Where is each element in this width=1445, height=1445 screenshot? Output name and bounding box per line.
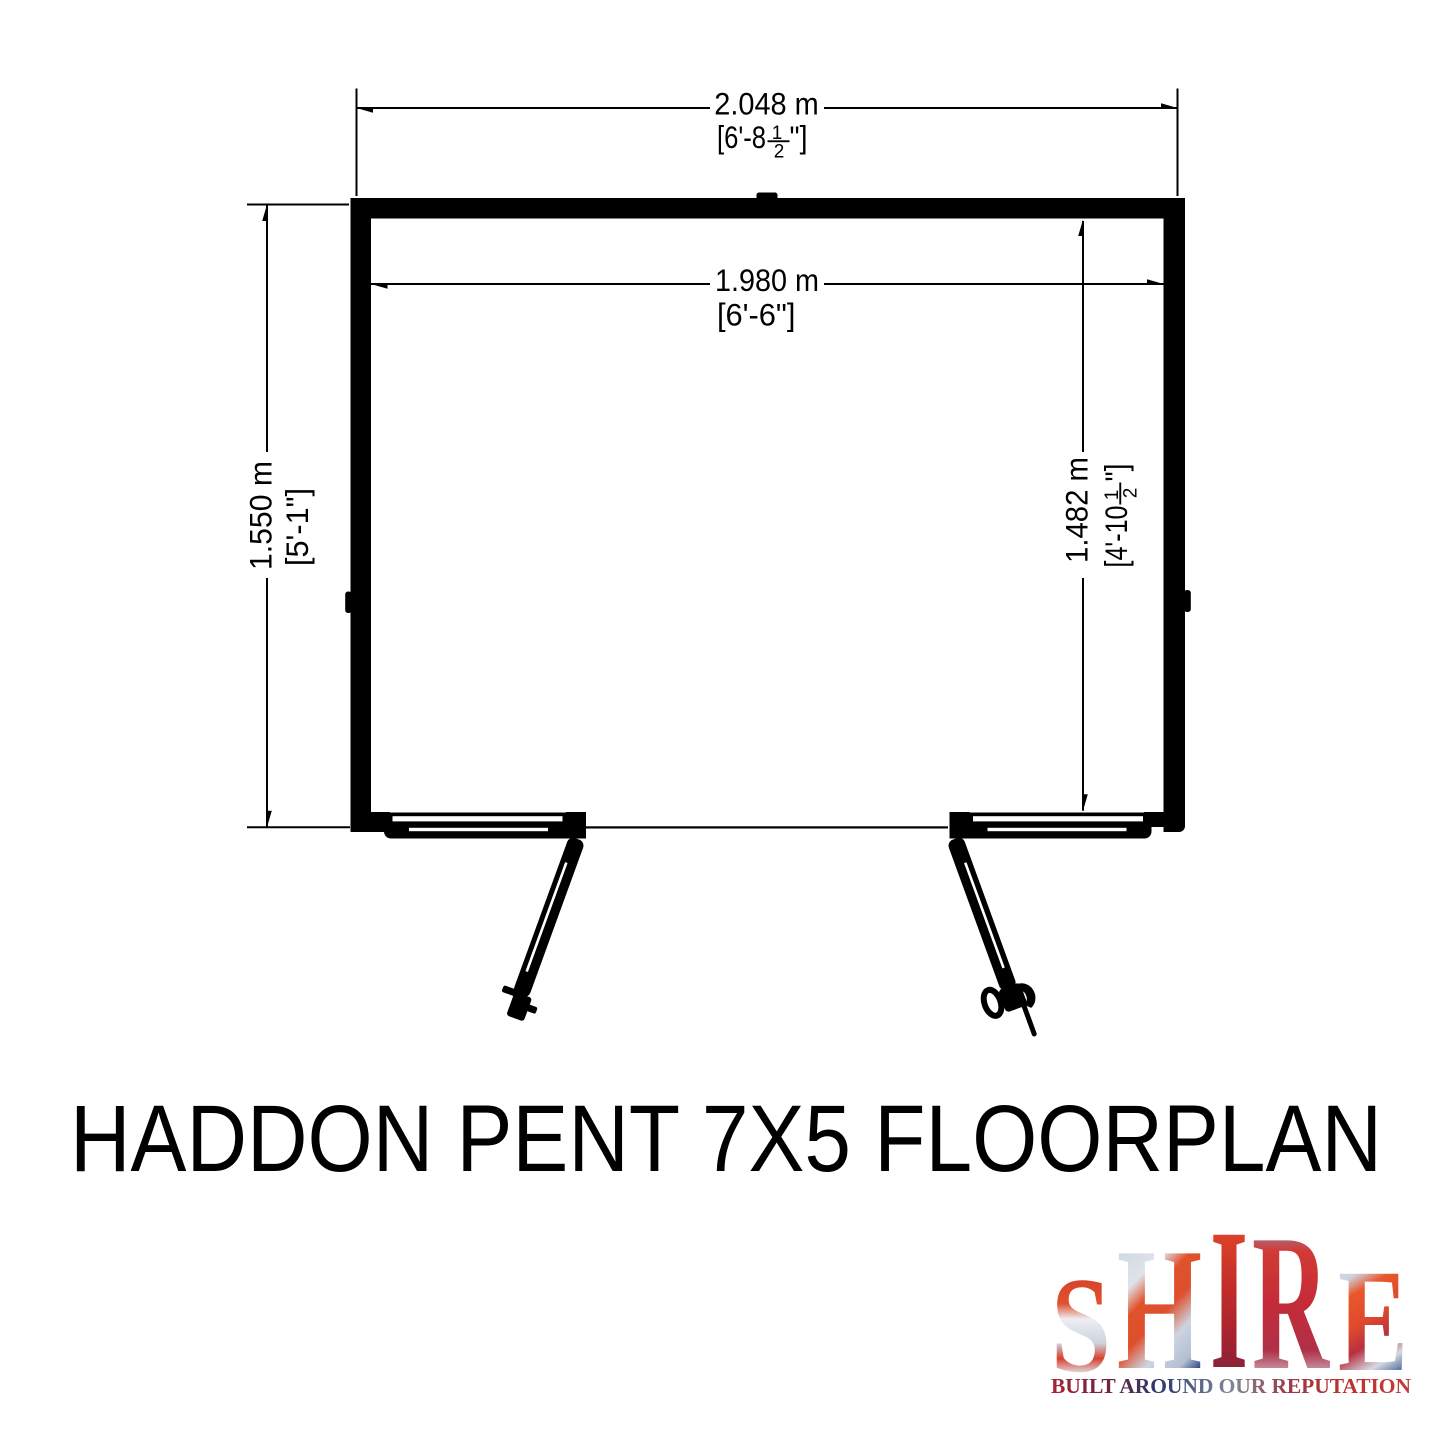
svg-text:2: 2 (1121, 488, 1142, 499)
svg-text:HADDON PENT 7X5 FLOORPLAN: HADDON PENT 7X5 FLOORPLAN (70, 1086, 1382, 1192)
svg-text:1.482 m: 1.482 m (1059, 457, 1095, 563)
svg-text:"]: "] (790, 119, 808, 155)
svg-text:"]: "] (1098, 464, 1134, 482)
svg-text:[6'-8: [6'-8 (717, 119, 766, 155)
svg-text:1.980 m: 1.980 m (715, 262, 819, 298)
svg-text:2.048 m: 2.048 m (714, 85, 819, 121)
svg-text:1.550 m: 1.550 m (243, 461, 279, 570)
svg-text:BUILT AROUND OUR REPUTATION: BUILT AROUND OUR REPUTATION (1051, 1374, 1411, 1398)
svg-text:2: 2 (774, 142, 785, 163)
svg-text:[4'-10: [4'-10 (1098, 506, 1134, 568)
svg-text:[5'-1"]: [5'-1"] (279, 488, 315, 566)
svg-text:[6'-6"]: [6'-6"] (717, 296, 796, 332)
